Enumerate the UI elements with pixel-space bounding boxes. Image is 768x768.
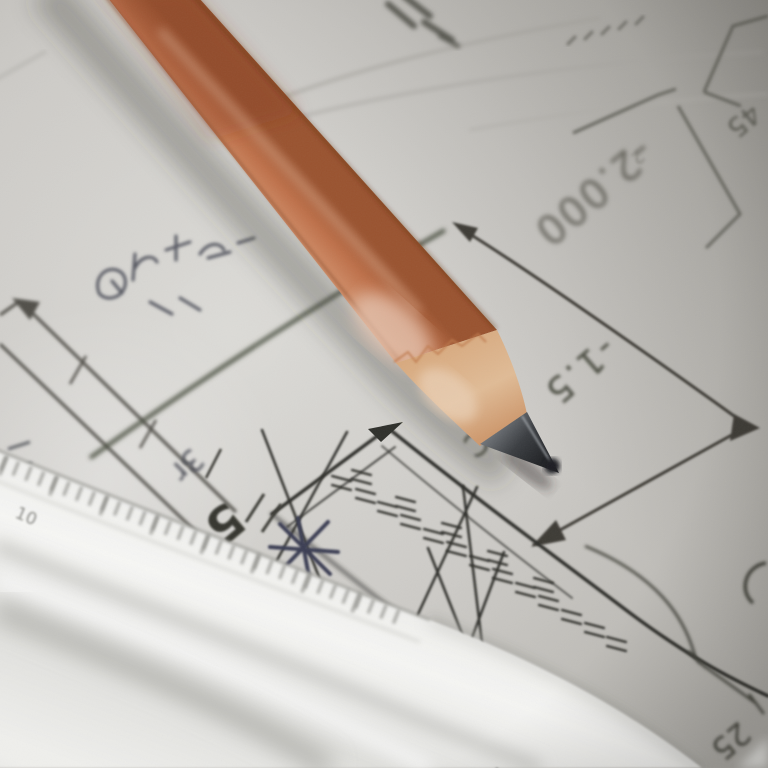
film-grain — [0, 0, 768, 768]
photo-architectural-drawing: 45 2 -2.000 -1.5 C — [0, 0, 768, 768]
photo-canvas: 45 2 -2.000 -1.5 C — [0, 0, 768, 768]
